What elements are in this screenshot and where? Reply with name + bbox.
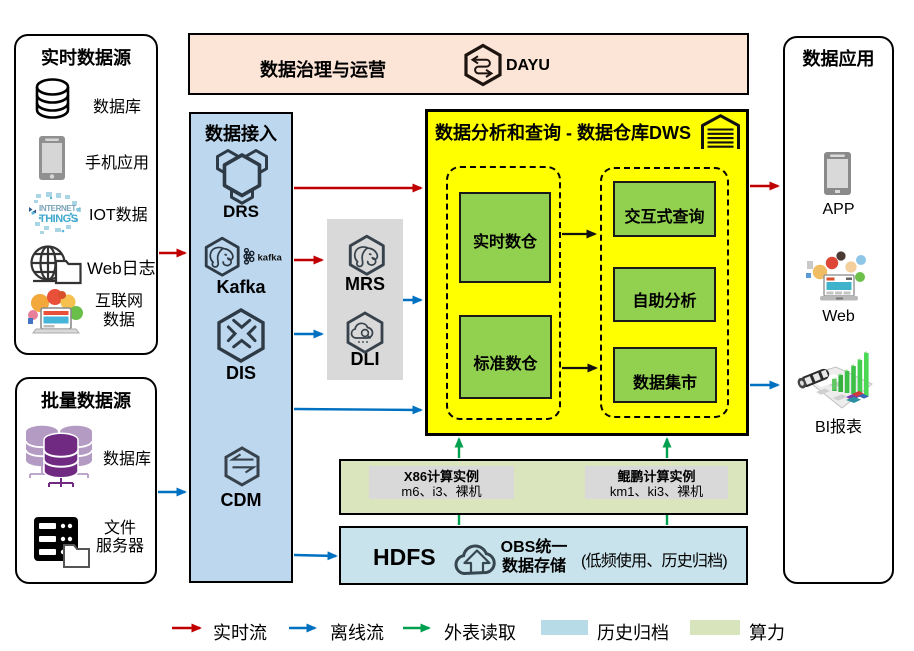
svg-text:THINGS: THINGS — [39, 213, 78, 225]
svg-text:kafka: kafka — [258, 253, 283, 264]
svg-text:INTERNETof: INTERNETof — [39, 204, 81, 213]
